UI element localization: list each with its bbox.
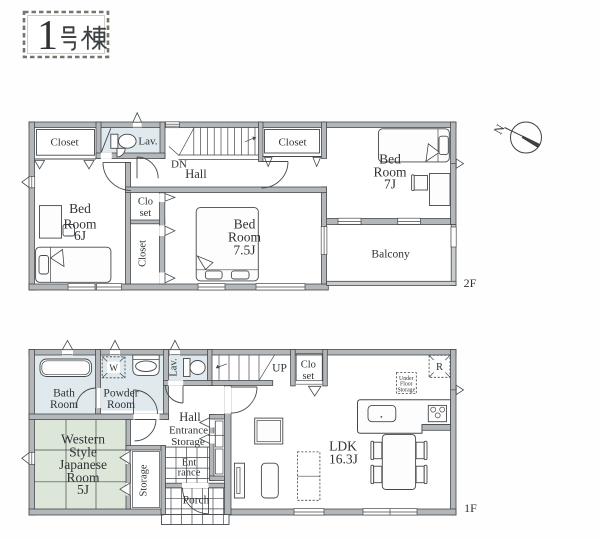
svg-text:1F: 1F: [464, 501, 477, 515]
svg-text:Clo: Clo: [301, 360, 316, 371]
svg-text:R: R: [436, 362, 443, 373]
svg-text:Entrance: Entrance: [169, 425, 208, 437]
svg-text:Balcony: Balcony: [371, 249, 410, 261]
svg-text:1: 1: [37, 13, 58, 59]
svg-text:Closet: Closet: [50, 137, 78, 149]
svg-text:Porch: Porch: [183, 495, 210, 507]
svg-text:set: set: [140, 208, 152, 219]
svg-text:rance: rance: [178, 468, 201, 479]
svg-text:Bed: Bed: [69, 201, 91, 216]
svg-text:16.3J: 16.3J: [329, 452, 358, 467]
svg-text:Room: Room: [107, 399, 135, 411]
svg-text:Storage: Storage: [139, 464, 150, 496]
svg-text:7J: 7J: [384, 177, 396, 192]
svg-text:Lav.: Lav.: [169, 358, 180, 376]
svg-text:Closet: Closet: [137, 240, 148, 267]
svg-text:UP: UP: [272, 363, 287, 375]
svg-text:Room: Room: [50, 399, 78, 411]
svg-text:7.5J: 7.5J: [233, 243, 255, 258]
svg-text:6J: 6J: [74, 228, 86, 243]
svg-text:Hall: Hall: [185, 167, 207, 181]
svg-text:Hall: Hall: [179, 410, 201, 424]
svg-text:Lav.: Lav.: [138, 136, 157, 148]
svg-text:2F: 2F: [464, 276, 477, 290]
svg-text:Bath: Bath: [53, 388, 75, 400]
svg-text:Clo: Clo: [138, 197, 153, 208]
svg-text:Storage: Storage: [397, 387, 415, 393]
svg-text:5J: 5J: [77, 482, 89, 497]
svg-text:W: W: [109, 363, 118, 373]
svg-text:Powder: Powder: [103, 388, 138, 400]
svg-text:Storage: Storage: [171, 436, 205, 448]
svg-text:set: set: [302, 371, 314, 382]
svg-text:Closet: Closet: [278, 137, 306, 149]
